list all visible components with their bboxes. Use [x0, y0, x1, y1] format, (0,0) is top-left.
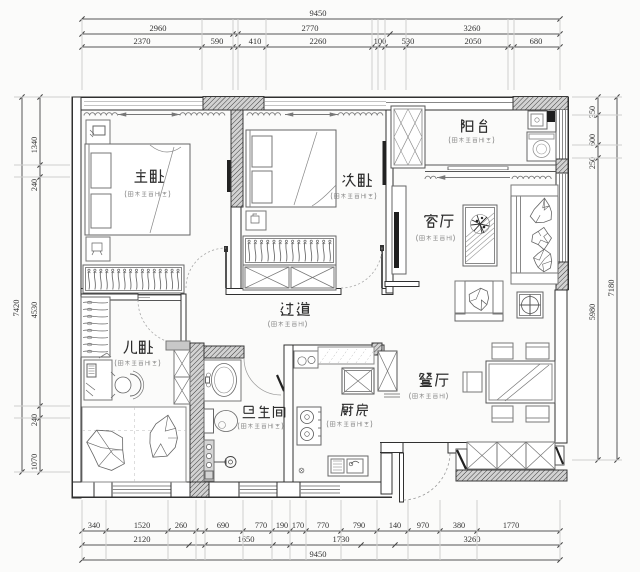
svg-text:3260: 3260: [464, 534, 481, 544]
svg-text:240: 240: [30, 414, 39, 426]
svg-text:250: 250: [588, 157, 597, 169]
svg-text:1070: 1070: [30, 454, 39, 470]
svg-text:7420: 7420: [11, 300, 21, 317]
svg-text:1340: 1340: [30, 137, 39, 153]
svg-text:380: 380: [453, 521, 465, 530]
svg-text:340: 340: [88, 521, 100, 530]
svg-text:9450: 9450: [310, 8, 327, 18]
svg-text:240: 240: [30, 179, 39, 191]
svg-text:770: 770: [317, 521, 329, 530]
svg-text:590: 590: [211, 36, 224, 46]
svg-text:1770: 1770: [503, 521, 519, 530]
svg-text:970: 970: [417, 521, 429, 530]
svg-text:260: 260: [175, 521, 187, 530]
svg-text:1650: 1650: [238, 534, 255, 544]
svg-text:2260: 2260: [310, 36, 327, 46]
svg-text:2050: 2050: [465, 36, 482, 46]
svg-text:680: 680: [530, 36, 543, 46]
svg-text:690: 690: [217, 521, 229, 530]
svg-text:2370: 2370: [134, 36, 151, 46]
svg-text:9450: 9450: [310, 549, 327, 559]
svg-text:770: 770: [255, 521, 267, 530]
svg-text:350: 350: [588, 106, 597, 118]
svg-text:2770: 2770: [302, 23, 319, 33]
svg-text:2960: 2960: [150, 23, 167, 33]
svg-text:5980: 5980: [588, 304, 597, 320]
svg-text:530: 530: [402, 36, 415, 46]
svg-text:790: 790: [353, 521, 365, 530]
svg-text:3260: 3260: [464, 23, 481, 33]
svg-text:2120: 2120: [134, 534, 151, 544]
svg-text:190: 190: [276, 521, 288, 530]
svg-text:170: 170: [292, 521, 304, 530]
svg-text:1520: 1520: [134, 521, 150, 530]
svg-text:100: 100: [374, 36, 387, 46]
svg-text:410: 410: [249, 36, 262, 46]
svg-text:140: 140: [389, 521, 401, 530]
svg-text:4530: 4530: [30, 302, 39, 318]
svg-text:7180: 7180: [606, 280, 616, 297]
svg-text:600: 600: [588, 134, 597, 146]
